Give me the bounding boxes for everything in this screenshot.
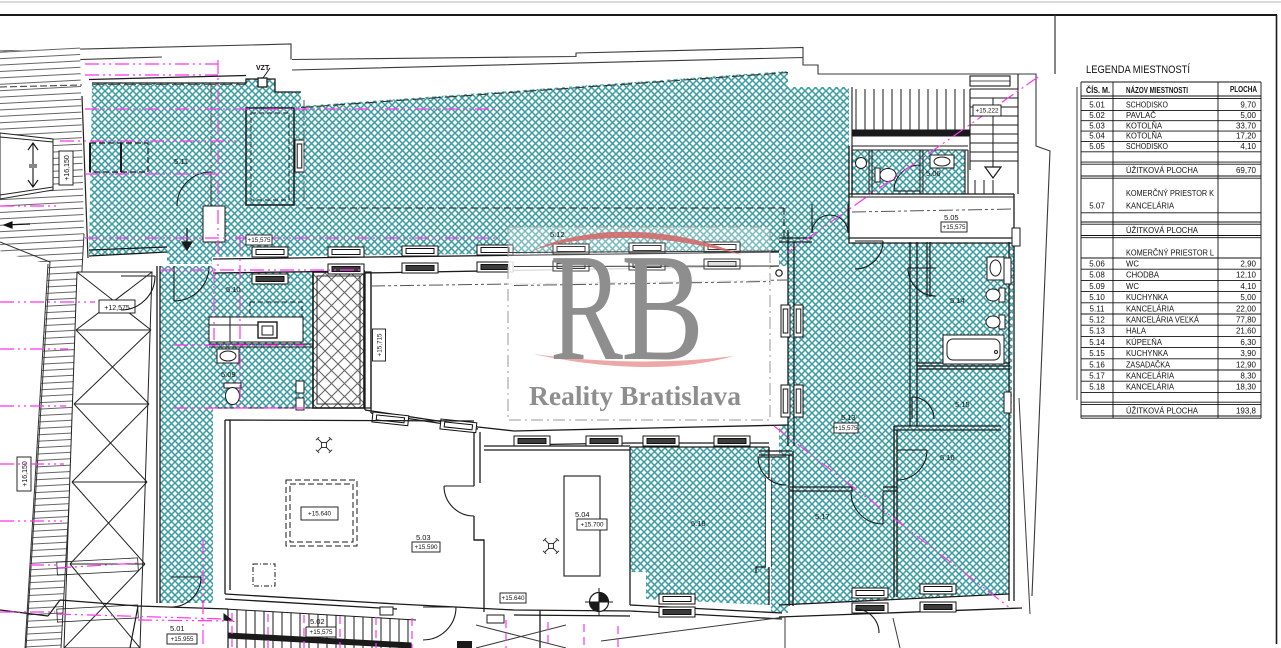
svg-text:77,80: 77,80: [1236, 316, 1257, 325]
svg-text:17,20: 17,20: [1236, 132, 1257, 141]
svg-text:+12,575: +12,575: [104, 305, 130, 312]
svg-text:5.11: 5.11: [1090, 304, 1106, 313]
svg-text:KANCELÁRIA VEĽKÁ: KANCELÁRIA VEĽKÁ: [1126, 316, 1200, 325]
svg-text:3,90: 3,90: [1240, 349, 1256, 358]
svg-text:B: B: [621, 223, 704, 393]
svg-text:+15.590: +15.590: [415, 544, 438, 551]
svg-text:5.01: 5.01: [1089, 101, 1105, 110]
svg-text:ÚŽITKOVÁ PLOCHA: ÚŽITKOVÁ PLOCHA: [1126, 407, 1199, 416]
svg-text:5.18: 5.18: [1089, 383, 1105, 392]
svg-text:5.06: 5.06: [926, 169, 941, 178]
svg-text:5.02: 5.02: [1089, 111, 1105, 120]
svg-text:5.10: 5.10: [1089, 293, 1105, 302]
svg-text:PLOCHA: PLOCHA: [1230, 85, 1257, 94]
svg-text:5.03: 5.03: [416, 533, 431, 542]
svg-text:5.06: 5.06: [1089, 260, 1105, 269]
svg-text:KOTOLŇA: KOTOLŇA: [1126, 132, 1163, 141]
svg-text:5.04: 5.04: [575, 510, 590, 519]
svg-text:5.03: 5.03: [1089, 121, 1105, 130]
svg-text:5.09: 5.09: [1089, 282, 1105, 291]
svg-text:KUCHYNKA: KUCHYNKA: [1126, 349, 1169, 358]
svg-text:+15.700: +15.700: [581, 522, 604, 529]
svg-text:+15,575: +15,575: [835, 425, 858, 432]
svg-text:4,10: 4,10: [1240, 142, 1256, 151]
svg-text:+15.640: +15.640: [502, 595, 525, 602]
svg-text:WC: WC: [1126, 282, 1139, 291]
svg-text:5.13: 5.13: [1089, 327, 1105, 336]
svg-text:5,00: 5,00: [1240, 111, 1256, 120]
svg-text:5.17: 5.17: [1089, 372, 1105, 381]
svg-text:22,00: 22,00: [1236, 304, 1257, 313]
svg-text:5.11: 5.11: [174, 157, 188, 166]
svg-text:5.12: 5.12: [1089, 316, 1105, 325]
svg-text:KÚPEĽŇA: KÚPEĽŇA: [1126, 338, 1163, 347]
svg-text:PAVLAČ: PAVLAČ: [1126, 111, 1156, 120]
svg-text:ÚŽITKOVÁ PLOCHA: ÚŽITKOVÁ PLOCHA: [1126, 166, 1199, 175]
svg-text:+15,222: +15,222: [976, 108, 999, 115]
svg-text:5.10: 5.10: [226, 285, 241, 294]
svg-text:5.15: 5.15: [955, 400, 970, 409]
svg-text:+15,575: +15,575: [248, 237, 271, 244]
svg-text:+15.640: +15.640: [308, 511, 331, 518]
svg-text:5.01: 5.01: [170, 624, 185, 633]
svg-text:VZT: VZT: [256, 65, 270, 72]
svg-text:5.14: 5.14: [950, 296, 965, 305]
svg-text:8,30: 8,30: [1240, 372, 1256, 381]
svg-text:5.16: 5.16: [940, 453, 955, 462]
svg-text:5.17: 5.17: [815, 512, 830, 521]
svg-text:18,30: 18,30: [1236, 383, 1257, 392]
svg-text:5.05: 5.05: [1089, 142, 1105, 151]
svg-text:69,70: 69,70: [1236, 166, 1257, 175]
svg-text:+16,150: +16,150: [64, 155, 71, 181]
svg-text:ZASADAČKA: ZASADAČKA: [1126, 360, 1171, 369]
svg-text:5.04: 5.04: [1089, 132, 1105, 141]
svg-text:5,00: 5,00: [1240, 293, 1256, 302]
svg-text:R: R: [550, 222, 623, 393]
svg-text:5.16: 5.16: [1089, 360, 1105, 369]
svg-text:KOTOLŇA: KOTOLŇA: [1126, 121, 1163, 130]
svg-text:5.12: 5.12: [550, 230, 565, 239]
svg-text:KANCELÁRIA: KANCELÁRIA: [1126, 304, 1175, 313]
svg-text:CHODBA: CHODBA: [1126, 271, 1160, 280]
svg-text:KANCELÁRIA: KANCELÁRIA: [1126, 372, 1175, 381]
svg-text:5.13: 5.13: [841, 413, 856, 422]
svg-text:5.09: 5.09: [221, 370, 236, 379]
svg-text:ČÍS. M.: ČÍS. M.: [1086, 86, 1110, 95]
svg-text:5.05: 5.05: [944, 213, 959, 222]
svg-text:5.15: 5.15: [1089, 349, 1105, 358]
svg-text:6,30: 6,30: [1240, 338, 1256, 347]
svg-text:KUCHYNKA: KUCHYNKA: [1126, 293, 1169, 302]
svg-text:LEGENDA MIESTNOSTÍ: LEGENDA MIESTNOSTÍ: [1086, 63, 1191, 76]
svg-text:NÁZOV MIESTNOSTI: NÁZOV MIESTNOSTI: [1126, 86, 1188, 95]
svg-text:KANCELÁRIA: KANCELÁRIA: [1126, 202, 1175, 211]
svg-text:ÚŽITKOVÁ PLOCHA: ÚŽITKOVÁ PLOCHA: [1126, 226, 1199, 235]
svg-text:9,70: 9,70: [1240, 101, 1256, 110]
svg-text:HALA: HALA: [1126, 327, 1147, 336]
svg-text:KOMERČNÝ PRIESTOR L: KOMERČNÝ PRIESTOR L: [1126, 249, 1215, 258]
svg-text:+15,575: +15,575: [943, 224, 966, 231]
svg-text:4,10: 4,10: [1240, 282, 1256, 291]
svg-text:5.07: 5.07: [1089, 202, 1105, 211]
svg-text:KANCELÁRIA: KANCELÁRIA: [1126, 383, 1175, 392]
svg-text:SCHODISKO: SCHODISKO: [1126, 142, 1168, 151]
svg-text:12,90: 12,90: [1236, 360, 1257, 369]
svg-text:SCHODISKO: SCHODISKO: [1126, 101, 1168, 110]
svg-text:+15.955: +15.955: [171, 636, 194, 643]
svg-text:Reality Bratislava: Reality Bratislava: [529, 381, 741, 411]
svg-text:12,10: 12,10: [1236, 271, 1257, 280]
svg-text:+16,150: +16,150: [22, 461, 29, 487]
svg-text:+15,575: +15,575: [310, 629, 333, 636]
svg-text:5.18: 5.18: [691, 519, 706, 528]
svg-text:+15,715: +15,715: [377, 333, 384, 356]
svg-text:5.08: 5.08: [1089, 271, 1105, 280]
svg-text:WC: WC: [1126, 260, 1139, 269]
svg-text:21,60: 21,60: [1236, 327, 1257, 336]
svg-text:5.14: 5.14: [1089, 338, 1105, 347]
svg-text:33,70: 33,70: [1236, 121, 1257, 130]
svg-text:KOMERČNÝ PRIESTOR K: KOMERČNÝ PRIESTOR K: [1126, 189, 1215, 198]
svg-text:2,90: 2,90: [1240, 260, 1256, 269]
svg-text:5.02: 5.02: [310, 617, 325, 626]
svg-text:193,8: 193,8: [1236, 407, 1257, 416]
